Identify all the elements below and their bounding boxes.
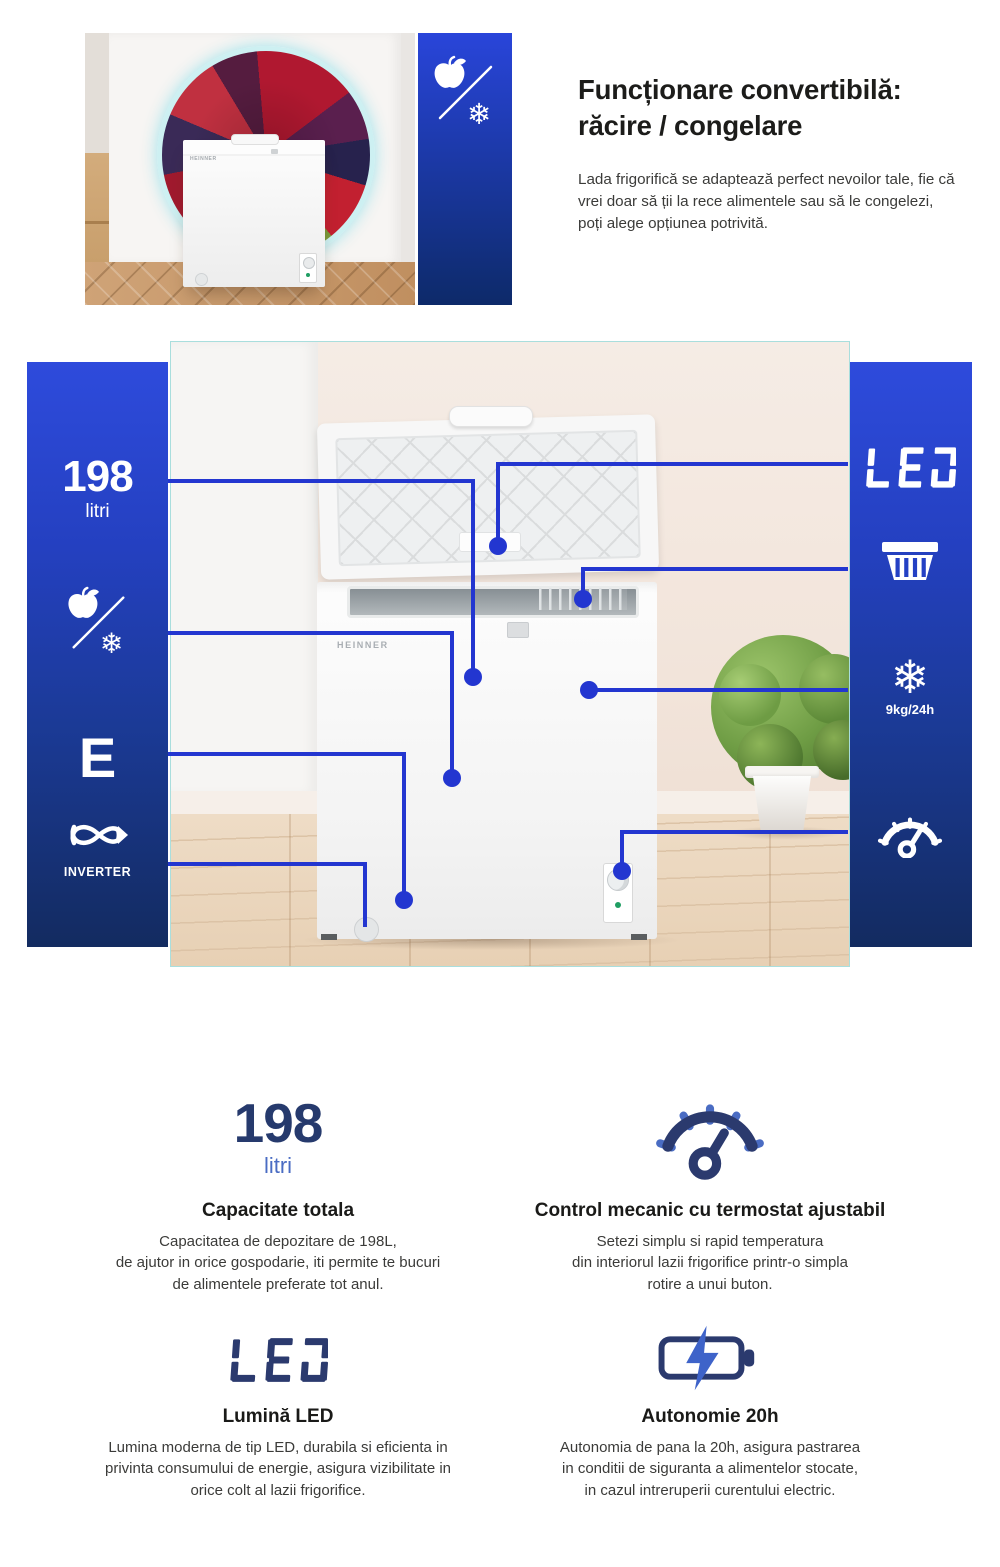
capacity-unit: litri (27, 501, 168, 523)
feature-body: Setezi simplu si rapid temperatura din i… (520, 1231, 900, 1295)
feature-capacity: 198 litri Capacitate totala Capacitatea … (88, 1090, 468, 1295)
led-digital-icon (864, 447, 956, 488)
thermostat-panel (603, 863, 633, 923)
thermostat-dial-icon (877, 810, 943, 858)
section-body: Lada frigorifică se adaptează perfect ne… (578, 169, 956, 235)
convertible-callout: ❄ (27, 586, 168, 661)
thermostat-panel (299, 253, 317, 283)
inverter-callout: INVERTER (27, 814, 168, 879)
right-feature-bar: LED (848, 362, 972, 947)
svg-text:❄: ❄ (467, 97, 491, 127)
led-icon-wrap: LED (88, 1328, 468, 1392)
inverter-icon (67, 814, 129, 856)
led-callout: LED (848, 447, 972, 493)
battery-icon-wrap (520, 1328, 900, 1392)
capacity-value: 198 (234, 1097, 323, 1149)
snowflake-icon: ❄ (848, 654, 972, 700)
svg-text:❄: ❄ (99, 627, 123, 656)
feature-diagram-section: 198 litri ❄ E (27, 341, 972, 967)
capacity-value: 198 (27, 455, 168, 499)
brand-logo: HEINNER (337, 640, 389, 650)
product-page: HEINNER ❄ Funcționare convertibilă: răci… (0, 0, 1000, 1567)
left-feature-bar: 198 litri ❄ E (27, 362, 168, 947)
basket-icon (882, 534, 938, 582)
thermostat-callout (848, 810, 972, 863)
drain-cap (195, 273, 208, 286)
feature-autonomy: Autonomie 20h Autonomia de pana la 20h, … (520, 1328, 900, 1501)
feature-body: Capacitatea de depozitare de 198L, de aj… (88, 1231, 468, 1295)
energy-class-value: E (27, 730, 168, 786)
battery-bolt-icon (648, 1324, 772, 1392)
freezer-handle (231, 134, 279, 145)
feature-body: Autonomia de pana la 20h, asigura pastra… (520, 1437, 900, 1501)
power-indicator (306, 273, 310, 277)
capacity-callout: 198 litri (27, 455, 168, 523)
inverter-label: INVERTER (27, 865, 168, 879)
scene-wall (171, 342, 318, 794)
basket-callout (848, 534, 972, 587)
apple-snowflake-icon: ❄ (433, 55, 497, 127)
power-indicator (615, 902, 621, 908)
hero-accent-band: ❄ (418, 33, 512, 305)
led-digital-icon (228, 1338, 328, 1382)
feature-title: Control mecanic cu termostat ajustabil (520, 1200, 900, 1222)
hero-photo: HEINNER (85, 33, 415, 305)
freezing-capacity-callout: ❄ 9kg/24h (848, 654, 972, 717)
thermostat-icon-wrap (520, 1090, 900, 1186)
thermostat-knob (303, 257, 315, 269)
plant-foliage (719, 664, 781, 726)
energy-class-callout: E (27, 730, 168, 786)
thermostat-dial-icon (654, 1094, 766, 1182)
feature-body: Lumina moderna de tip LED, durabila si e… (88, 1437, 468, 1501)
freezer-lock (271, 149, 278, 154)
feature-title: Capacitate totala (88, 1200, 468, 1222)
freezer-basket (539, 588, 627, 610)
freezer-lock (507, 622, 529, 638)
hero-freezer-image: HEINNER (183, 140, 325, 287)
product-scene: HEINNER (170, 341, 850, 967)
drain-cap (354, 917, 379, 942)
thermostat-knob (607, 869, 629, 891)
freezer-open-lid (317, 414, 659, 579)
feature-thermostat: Control mecanic cu termostat ajustabil S… (520, 1090, 900, 1295)
brand-logo: HEINNER (190, 156, 217, 162)
freezer-foot (321, 934, 337, 940)
feature-title: Autonomie 20h (520, 1406, 900, 1428)
freezer-foot (631, 934, 647, 940)
freezing-capacity-label: 9kg/24h (848, 702, 972, 717)
led-light-fixture (459, 532, 521, 552)
apple-snowflake-icon: ❄ (66, 586, 130, 656)
feature-title: Lumină LED (88, 1406, 468, 1428)
freezer-handle (449, 406, 533, 427)
feature-led: LED Lumină LED Lumina moderna de tip LED… (88, 1328, 468, 1501)
section-title: Funcționare convertibilă: răcire / conge… (578, 72, 956, 145)
capacity-unit: litri (264, 1153, 292, 1179)
capacity-stat: 198 litri (88, 1090, 468, 1186)
